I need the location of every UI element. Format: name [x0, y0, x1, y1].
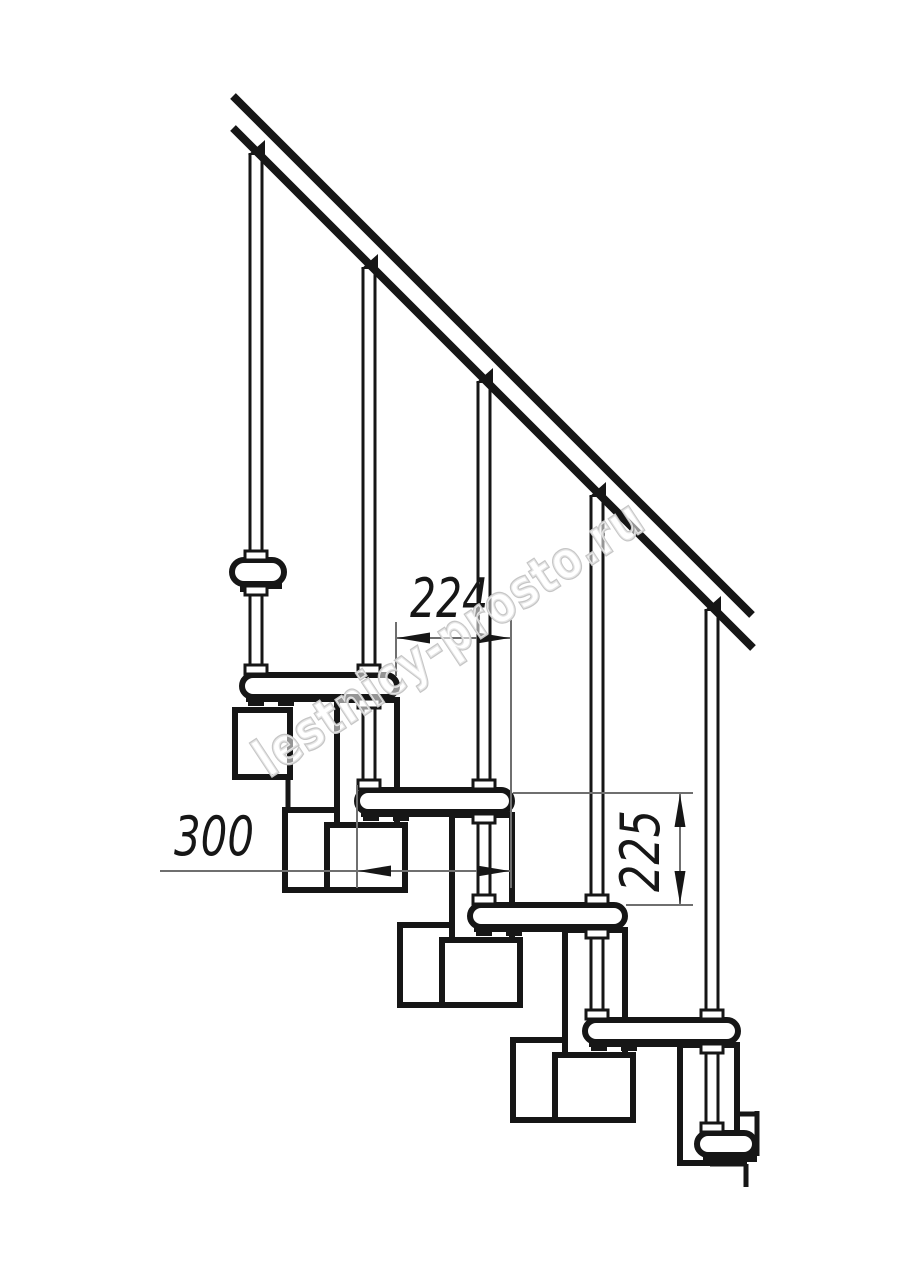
staircase-drawing: 224 300 225 lestnicy-prosto.ru: [0, 0, 914, 1280]
handrail-line: [233, 128, 753, 648]
tread-1: [232, 560, 284, 584]
tread-4: [470, 905, 625, 927]
dimension-label-300: 300: [174, 805, 254, 868]
mount-tab: [248, 696, 264, 706]
mount-tab: [476, 926, 492, 936]
collar: [473, 780, 495, 789]
collar: [245, 551, 267, 560]
handrail-line: [233, 96, 752, 615]
mount-tab: [591, 1041, 607, 1051]
tread-6: [697, 1133, 755, 1155]
dimension-arrow: [675, 871, 686, 904]
collar: [586, 1010, 608, 1019]
collar: [245, 586, 267, 595]
module-box-d: [555, 1055, 633, 1120]
collar: [473, 895, 495, 904]
mount-tab: [621, 1041, 637, 1051]
collar: [586, 929, 608, 938]
tread-5: [585, 1020, 738, 1042]
collar: [701, 1123, 723, 1132]
mount-tab: [363, 811, 379, 821]
collar: [358, 780, 380, 789]
mount-tab: [278, 696, 294, 706]
module-box-b: [327, 825, 405, 890]
collar: [245, 665, 267, 674]
dimension-label-225: 225: [609, 810, 672, 892]
drawing-page: 224 300 225 lestnicy-prosto.ru: [0, 0, 914, 1280]
mount-tab: [506, 926, 522, 936]
collar: [701, 1044, 723, 1053]
collar: [701, 1010, 723, 1019]
tread-3: [357, 790, 512, 812]
mount-tab: [393, 811, 409, 821]
mount-tab: [703, 1153, 757, 1162]
watermark: lestnicy-prosto.ru: [243, 488, 656, 789]
module-box-c: [442, 940, 520, 1005]
collar: [473, 814, 495, 823]
dimension-arrow: [675, 794, 686, 827]
collar: [586, 895, 608, 904]
